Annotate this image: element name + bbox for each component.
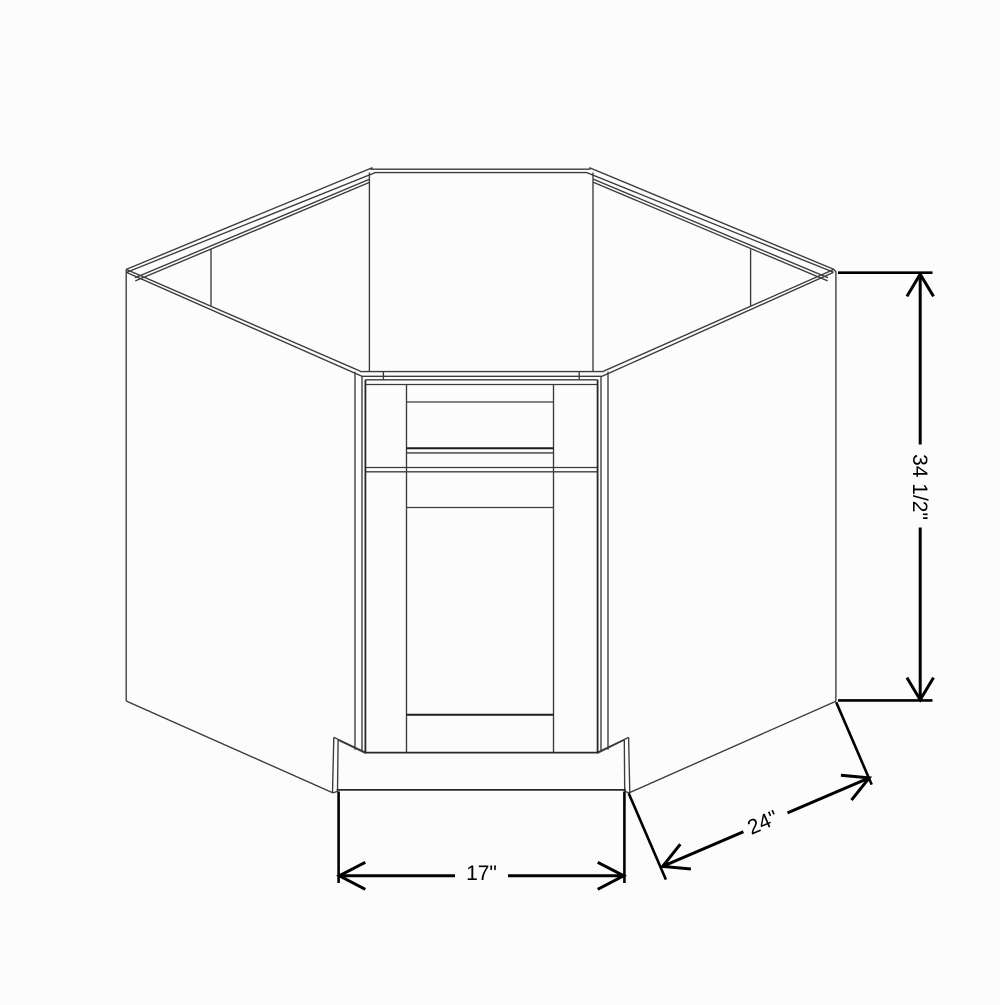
svg-text:17": 17" [466,862,497,885]
svg-text:34 1/2": 34 1/2" [908,454,931,520]
